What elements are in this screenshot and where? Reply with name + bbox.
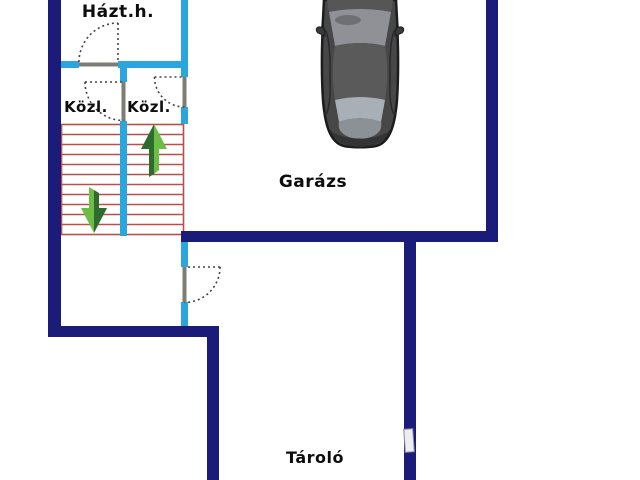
hall-bottom-wall [48, 326, 219, 337]
floorplan-canvas: Házt.h. Közl. Közl. Garázs Tároló [0, 0, 640, 480]
storage-left-wall [207, 326, 219, 480]
floorplan-drawing [0, 0, 640, 480]
room-label-kozl-left: Közl. [57, 98, 115, 116]
car-right-mirror [395, 27, 404, 36]
room-label-hazth: Házt.h. [68, 2, 168, 22]
room-label-tarolo: Tároló [263, 448, 367, 467]
left-wall [48, 0, 61, 337]
window-marker [404, 429, 415, 453]
stairs-up-arrow-icon [141, 124, 167, 177]
exterior-walls [48, 0, 498, 480]
storage-door [185, 267, 221, 303]
car-left-mirror [316, 27, 325, 36]
car-top-view-icon [316, 0, 404, 147]
room-label-kozl-right: Közl. [120, 98, 178, 116]
garage-right-wall [486, 0, 498, 242]
interior-walls [61, 0, 188, 327]
garage-bottom-wall [181, 231, 498, 242]
hazth-door [79, 23, 118, 65]
room-label-garazs: Garázs [261, 172, 365, 192]
